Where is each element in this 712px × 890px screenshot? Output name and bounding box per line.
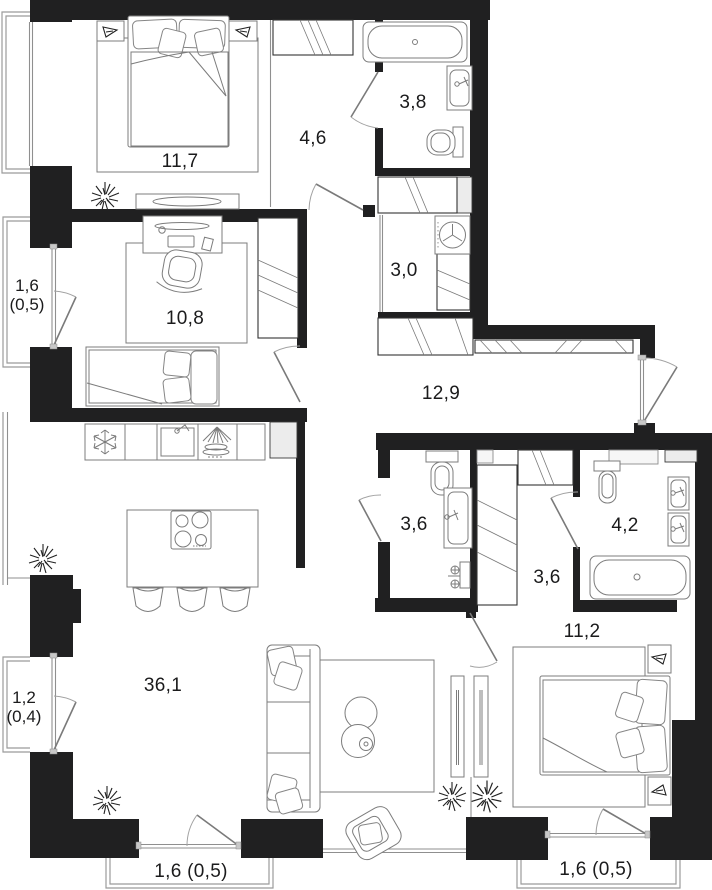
plant-living-corner (93, 786, 121, 815)
balcony-door-office (50, 244, 76, 349)
desk (143, 216, 222, 253)
door-bedroom-bottom (470, 613, 497, 667)
label-hallway: 12,9 (422, 383, 460, 404)
double-bed (128, 16, 229, 147)
room-living-kitchen (29, 424, 434, 863)
label-balcony-bottom-left: 1,6 (0,5) (154, 861, 227, 882)
wardrobe-corridor-tall (477, 465, 517, 605)
label-balcony-left-top-1: 1,6 (15, 276, 39, 295)
washer-tap-icon (448, 562, 470, 588)
label-office: 10,8 (166, 308, 204, 329)
wardrobe-bedroom-top (273, 20, 353, 55)
bar-stool (177, 588, 207, 612)
window-living-bottom (323, 849, 466, 853)
balcony-left-top-unlabeled (2, 12, 33, 173)
floor-plan-page: 11,7 4,6 3,8 3,0 10,8 12,9 3,6 3,6 4,2 1… (0, 0, 712, 890)
double-bed-bottom (540, 676, 670, 775)
room-bathroom-right (590, 461, 690, 599)
balcony-door-living-left (50, 653, 76, 754)
label-utility: 3,0 (390, 260, 417, 281)
bar-stool (220, 588, 250, 612)
nightstand-left (97, 21, 124, 41)
label-balcony-left-bottom-2: (0,4) (7, 707, 42, 726)
sink-double-top (668, 477, 689, 510)
washing-machine (435, 216, 470, 254)
single-bed (86, 347, 219, 406)
bathtub-right (590, 556, 690, 599)
label-bathroom-top: 3,8 (399, 92, 426, 113)
plant-bedroom-top (91, 182, 119, 211)
kitchen-island (127, 510, 258, 612)
bathtub-top (363, 22, 467, 62)
coat-rack-hallway (475, 340, 633, 353)
nightstand-right (229, 21, 257, 41)
label-corridor-top: 4,6 (299, 128, 326, 149)
floor-plan-drawing: 11,7 4,6 3,8 3,0 10,8 12,9 3,6 3,6 4,2 1… (0, 0, 712, 890)
sink-double-bottom (668, 513, 689, 546)
toilet-bathroom-right (594, 461, 620, 503)
room-utility (435, 216, 470, 254)
wardrobe-office (258, 218, 298, 338)
sink-bathroom-middle (444, 488, 472, 548)
label-bedroom-bottom: 11,2 (564, 621, 601, 642)
nightstand-bottom (648, 777, 671, 805)
plant-bedroom-1 (438, 782, 466, 811)
coffee-tables (342, 697, 378, 758)
door-bathroom-middle (359, 495, 381, 541)
closet-utility-top (378, 177, 457, 213)
label-living: 36,1 (144, 675, 182, 696)
label-wardrobe-corridor: 3,6 (533, 567, 560, 588)
plant-living-left (29, 544, 57, 573)
niche-corridor (477, 450, 493, 463)
label-bedroom-top: 11,7 (162, 151, 199, 172)
label-balcony-left-top-2: (0,5) (10, 295, 45, 314)
plant-bedroom-2 (472, 781, 503, 813)
label-balcony-bottom-right: 1,6 (0,5) (559, 859, 632, 880)
door-office (274, 346, 300, 402)
room-bathroom-middle (426, 451, 472, 588)
label-bathroom-middle: 3,6 (400, 514, 427, 535)
dresser (136, 194, 239, 209)
door-bathroom-right (551, 492, 578, 549)
room-bedroom-top (91, 16, 258, 211)
sliding-door-utility (380, 215, 383, 312)
kitchen-counter (85, 424, 265, 460)
room-bedroom-bottom (438, 645, 671, 817)
closet-hallway-left (378, 318, 473, 355)
label-balcony-left-bottom-1: 1,2 (12, 688, 36, 707)
balcony-door-living-bottom (136, 815, 241, 849)
entry-door (638, 355, 677, 425)
wardrobe-corridor-top (518, 450, 573, 485)
rug-living (320, 660, 434, 792)
duct-shaft-utility (456, 177, 472, 213)
office-chair (155, 247, 207, 296)
armchair (342, 803, 405, 863)
sink-bathroom-top (447, 66, 472, 110)
label-bathroom-right: 4,2 (611, 515, 638, 536)
door-bathroom-top (351, 72, 378, 128)
sofa (266, 645, 320, 815)
duct-shaft-entry (665, 450, 697, 462)
duct-shaft-kitchen (270, 422, 297, 458)
bar-stool (133, 588, 163, 612)
toilet-bathroom-top (427, 127, 463, 157)
shelves-utility (437, 254, 470, 310)
nightstand-top (648, 645, 671, 673)
door-corridor-top (309, 184, 363, 210)
balcony-door-bedroom-bottom (545, 809, 650, 838)
window-wall-kitchen (3, 412, 30, 585)
